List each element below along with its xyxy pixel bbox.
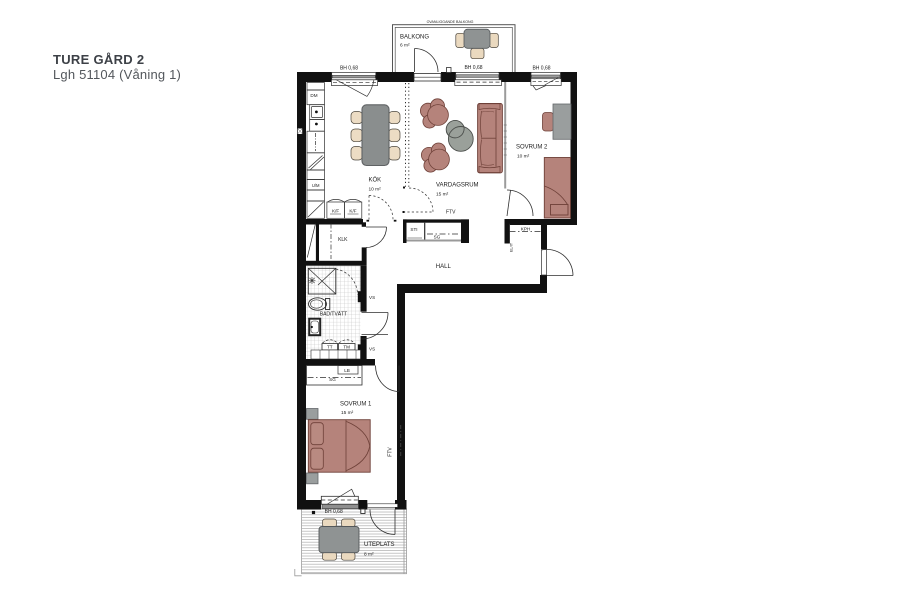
svg-text:STI: STI xyxy=(410,227,417,232)
svg-text:SG: SG xyxy=(434,235,441,240)
svg-text:K/F: K/F xyxy=(349,209,356,214)
svg-text:SOVRUM 2: SOVRUM 2 xyxy=(516,145,548,151)
svg-text:BAD/TVÄTT: BAD/TVÄTT xyxy=(320,311,348,318)
svg-text:OVANLIGGANDE BALKONG: OVANLIGGANDE BALKONG xyxy=(427,20,474,24)
svg-text:FTV: FTV xyxy=(446,210,456,216)
svg-text:TM: TM xyxy=(343,345,350,350)
svg-text:VS: VS xyxy=(369,295,375,300)
svg-text:UTEPLATS: UTEPLATS xyxy=(364,542,395,548)
svg-text:VS: VS xyxy=(369,347,375,352)
svg-text:KPH: KPH xyxy=(521,227,530,232)
svg-text:10 m²: 10 m² xyxy=(369,187,382,193)
svg-text:15 m²: 15 m² xyxy=(436,192,449,198)
svg-text:LB: LB xyxy=(344,368,350,373)
svg-text:VARDAGSRUM: VARDAGSRUM xyxy=(436,183,479,189)
svg-text:6 m²: 6 m² xyxy=(400,43,410,49)
svg-text:KÖK: KÖK xyxy=(369,177,382,184)
svg-text:BALKONG: BALKONG xyxy=(400,35,429,41)
svg-text:BH 0,68: BH 0,68 xyxy=(464,65,482,71)
svg-text:EL/IT: EL/IT xyxy=(510,242,514,252)
svg-text:HALL: HALL xyxy=(436,264,452,270)
svg-text:SG: SG xyxy=(329,377,336,382)
svg-text:8 m²: 8 m² xyxy=(364,552,374,558)
svg-text:TT: TT xyxy=(327,345,333,350)
svg-text:FTV: FTV xyxy=(388,447,394,457)
svg-text:U/M: U/M xyxy=(312,183,320,188)
svg-text:K/F: K/F xyxy=(332,209,339,214)
svg-text:KLK: KLK xyxy=(338,237,348,243)
svg-text:BH 0,68: BH 0,68 xyxy=(340,66,358,72)
svg-text:15 m²: 15 m² xyxy=(341,410,354,416)
svg-text:BH 0,68: BH 0,68 xyxy=(325,509,343,515)
svg-text:SOVRUM 1: SOVRUM 1 xyxy=(340,402,372,408)
svg-text:BH 0,68: BH 0,68 xyxy=(532,66,550,72)
svg-text:DM: DM xyxy=(310,93,317,98)
svg-text:10 m²: 10 m² xyxy=(517,154,530,160)
